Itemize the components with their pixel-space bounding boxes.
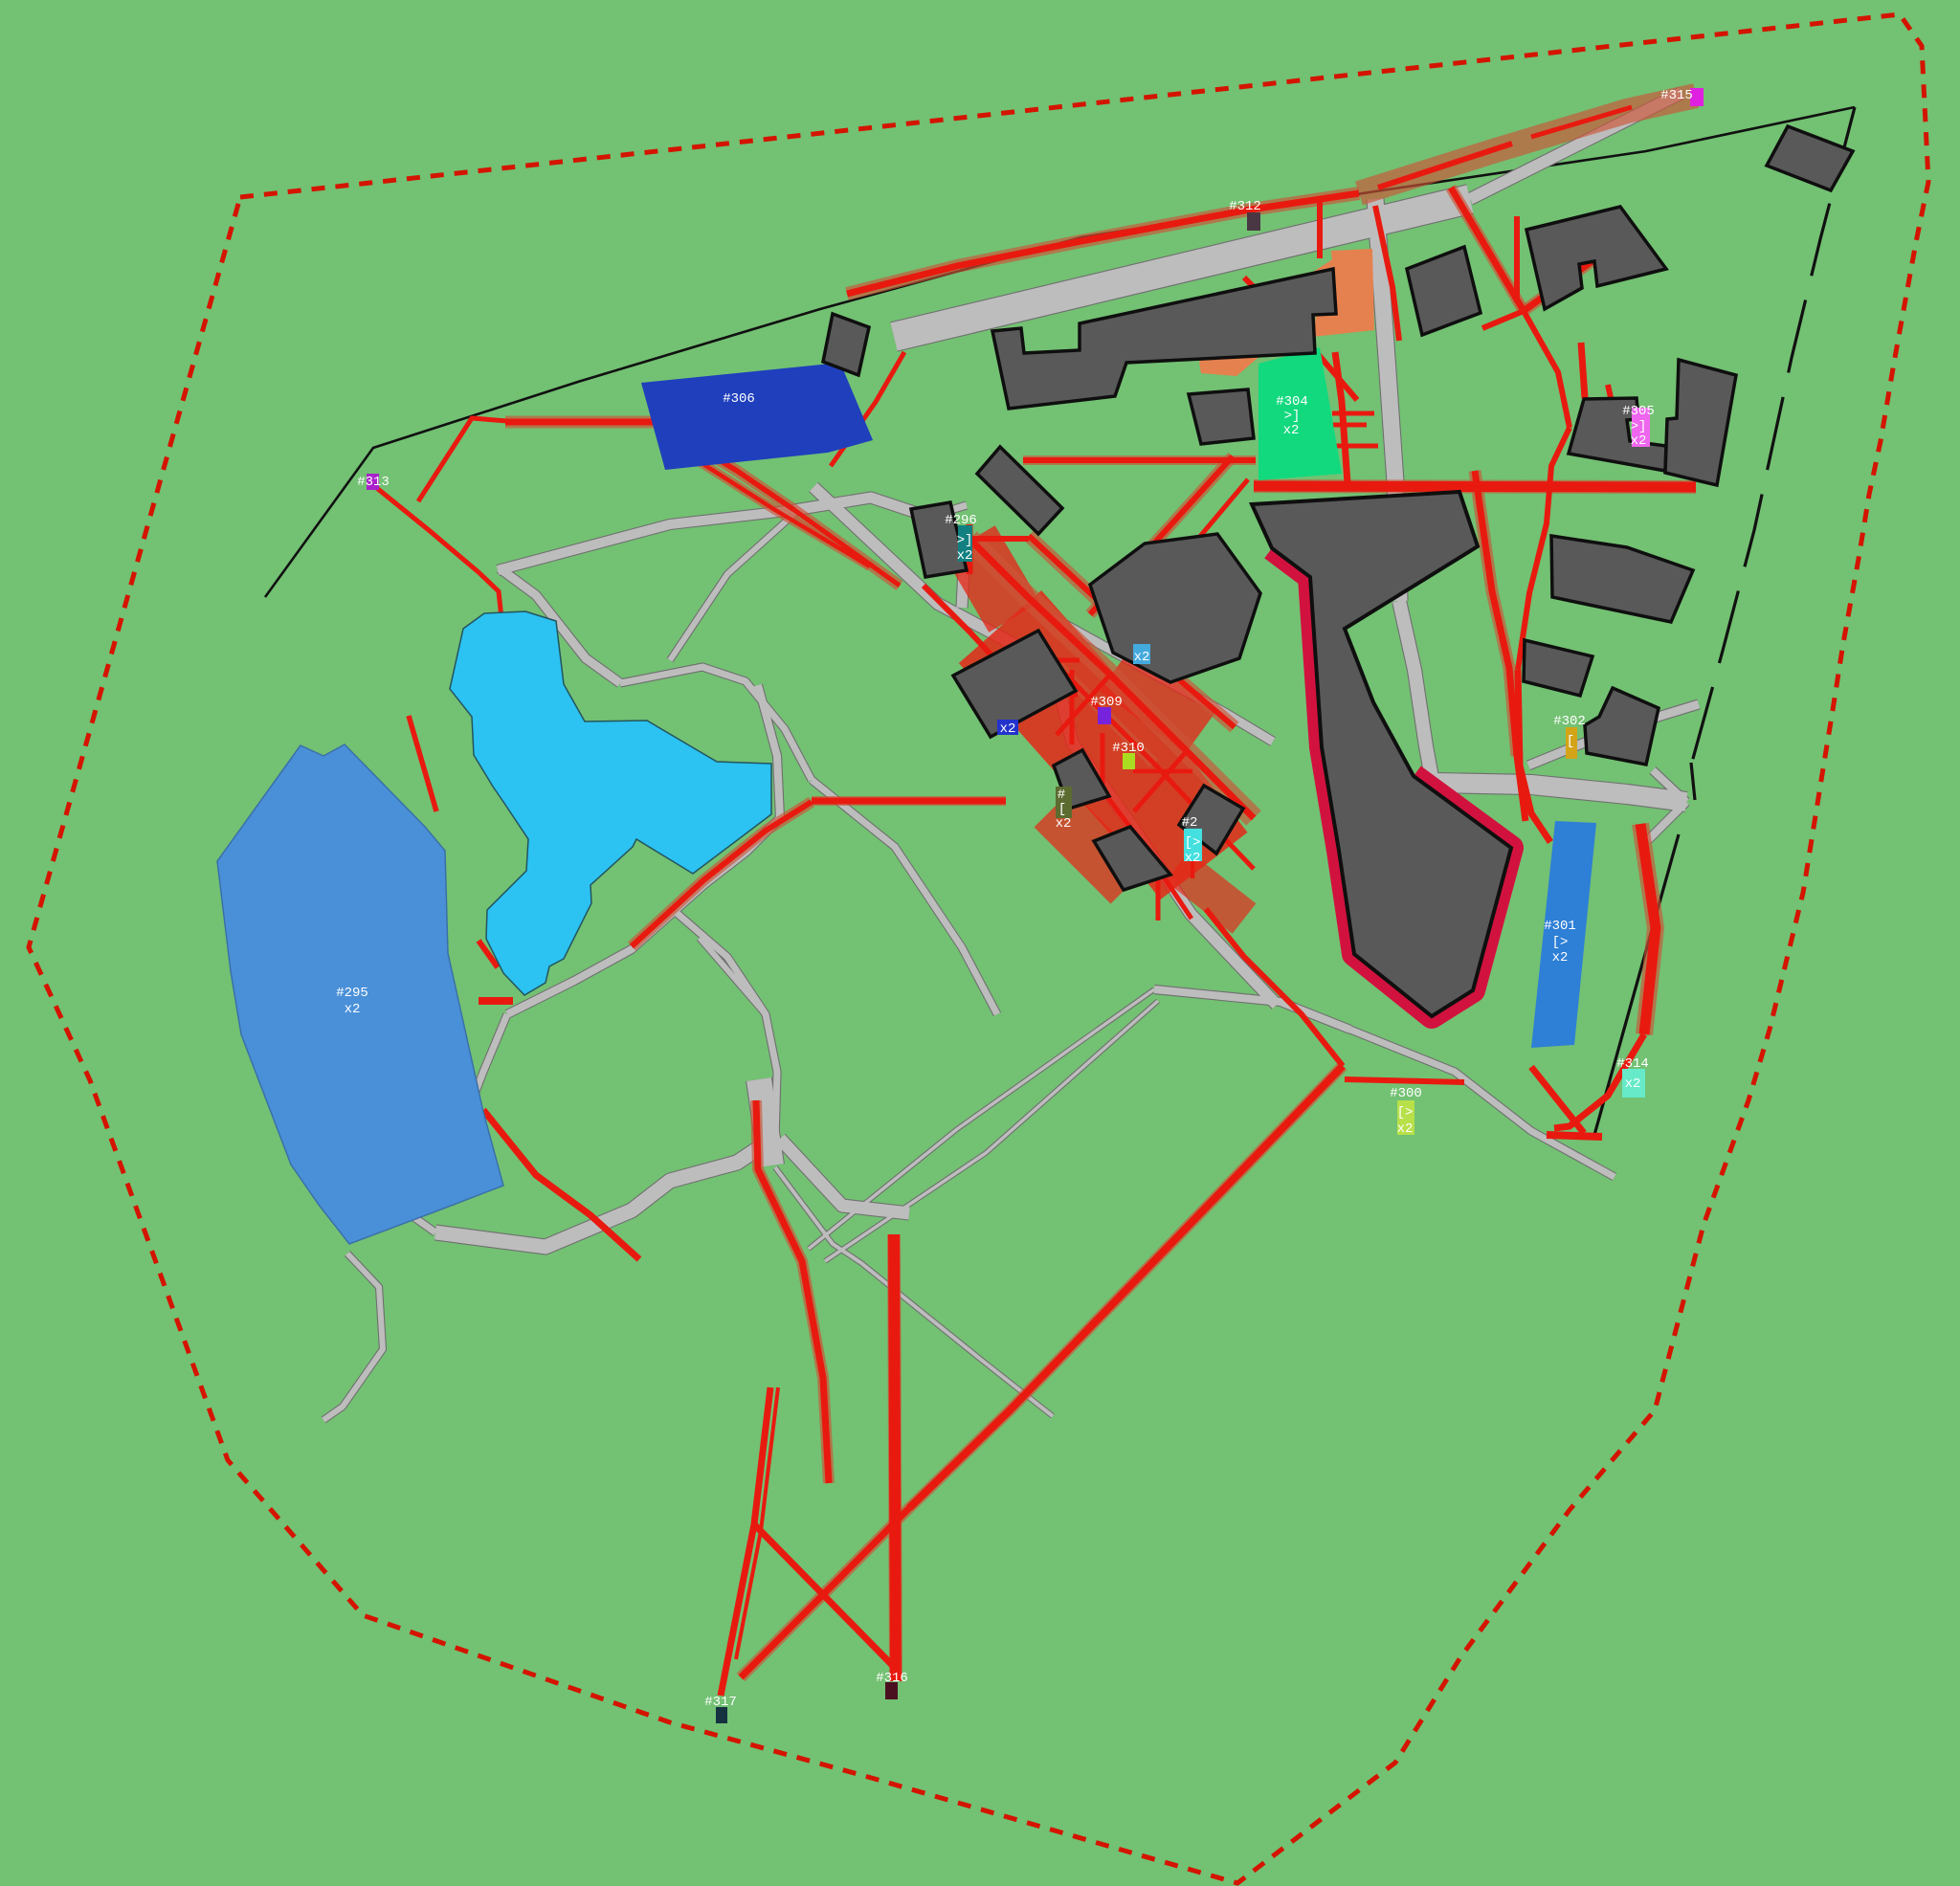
svg-text:#295: #295 bbox=[336, 986, 368, 1001]
svg-text:#305: #305 bbox=[1622, 404, 1655, 419]
svg-text:x2: x2 bbox=[1056, 816, 1072, 832]
svg-text:x2: x2 bbox=[957, 548, 973, 564]
svg-text:x2: x2 bbox=[1134, 650, 1150, 665]
svg-text:#316: #316 bbox=[876, 1671, 908, 1686]
svg-text:#313: #313 bbox=[357, 475, 390, 490]
svg-text:x2: x2 bbox=[1631, 433, 1647, 449]
svg-text:[: [ bbox=[1058, 802, 1066, 817]
svg-text:>]: >] bbox=[957, 533, 973, 548]
svg-text:#2: #2 bbox=[1182, 815, 1198, 831]
svg-text:#310: #310 bbox=[1112, 741, 1145, 756]
svg-text:[>: [> bbox=[1185, 835, 1201, 851]
svg-text:>]: >] bbox=[1631, 419, 1647, 434]
svg-text:x2: x2 bbox=[1283, 423, 1300, 438]
svg-text:#304: #304 bbox=[1276, 394, 1308, 410]
svg-text:x2: x2 bbox=[1000, 721, 1016, 737]
svg-text:[: [ bbox=[1567, 734, 1574, 749]
svg-text:[>: [> bbox=[1552, 935, 1569, 950]
svg-text:#302: #302 bbox=[1553, 714, 1586, 729]
svg-text:#296: #296 bbox=[945, 513, 977, 528]
svg-text:#309: #309 bbox=[1090, 695, 1123, 710]
svg-text:>]: >] bbox=[1284, 409, 1301, 424]
svg-text:#300: #300 bbox=[1390, 1086, 1422, 1101]
svg-text:#315: #315 bbox=[1660, 88, 1693, 103]
svg-text:x2: x2 bbox=[1185, 851, 1201, 866]
svg-text:[>: [> bbox=[1397, 1105, 1414, 1121]
svg-text:#: # bbox=[1058, 788, 1065, 803]
svg-text:#317: #317 bbox=[704, 1695, 737, 1710]
svg-text:#312: #312 bbox=[1229, 199, 1261, 214]
svg-text:#306: #306 bbox=[723, 391, 755, 407]
svg-text:x2: x2 bbox=[1397, 1121, 1414, 1137]
svg-text:x2: x2 bbox=[1625, 1076, 1641, 1092]
svg-text:#314: #314 bbox=[1616, 1056, 1649, 1072]
svg-text:x2: x2 bbox=[1552, 950, 1569, 965]
svg-text:x2: x2 bbox=[345, 1002, 361, 1017]
svg-text:#301: #301 bbox=[1544, 919, 1576, 934]
